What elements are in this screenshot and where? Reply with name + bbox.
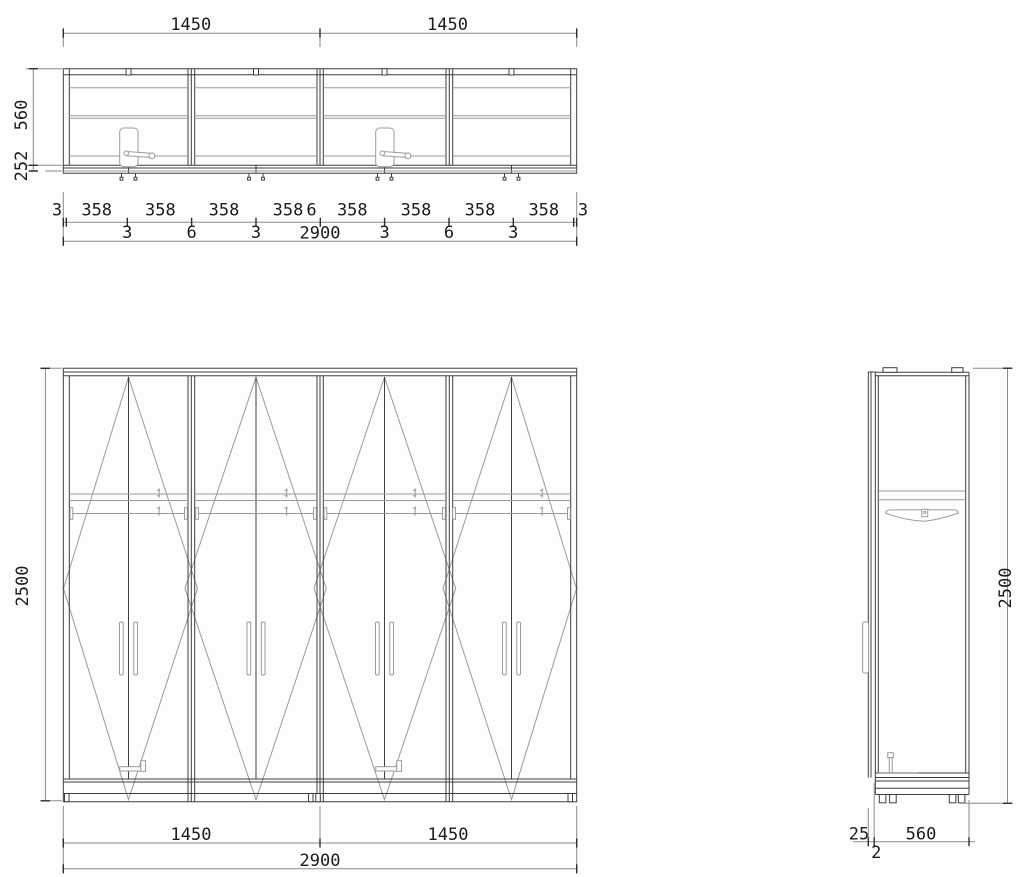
bottom-lock-brackets: [120, 761, 402, 772]
chain-gap-1: 6: [186, 223, 196, 243]
chain-seg-4: 358: [273, 201, 304, 221]
shelf-clip-symbols: [157, 488, 543, 515]
dim-side-height-2500: 2500: [996, 568, 1016, 609]
dim-front-depth-252: 252: [12, 151, 32, 182]
front-view-outline: [63, 368, 576, 801]
chain-seg-6: 358: [337, 201, 368, 221]
bottom-pin-fitting: [878, 753, 917, 773]
dim-top-total-2900: 2900: [300, 224, 341, 244]
chain-seg-10: 3: [578, 201, 588, 221]
lock-bay-1: [120, 128, 155, 167]
plinth-feet: [65, 794, 573, 802]
chain-gap-3: 3: [379, 223, 389, 243]
wardrobe-three-view-drawing: 1450 1450 560 252 3 358 358 358 358 6 35…: [0, 0, 1024, 877]
front-view: [63, 368, 576, 801]
top-view-outline: [63, 69, 576, 174]
chain-gap-2: 3: [251, 223, 261, 243]
chain-gap-5: 3: [508, 223, 518, 243]
top-view: [63, 69, 576, 180]
side-view: [863, 368, 969, 803]
top-view-dimensions: 1450 1450 560 252 3 358 358 358 358 6 35…: [12, 15, 588, 246]
hanging-rail-bracket: [886, 509, 959, 521]
side-view-outline: [868, 372, 969, 795]
dim-side-door-25: 25: [849, 825, 869, 845]
dim-top-width-2: 1450: [427, 15, 468, 35]
chain-seg-3: 358: [209, 201, 240, 221]
dim-top-width-1: 1450: [170, 15, 211, 35]
chain-seg-7: 358: [401, 201, 432, 221]
chain-gap-4: 6: [444, 223, 454, 243]
chain-seg-5: 6: [306, 201, 316, 221]
lock-bay-3: [376, 128, 411, 167]
side-door-handle: [863, 622, 869, 673]
dim-front-width-2: 1450: [428, 825, 469, 845]
dim-depth-560: 560: [12, 100, 32, 131]
chain-seg-1: 358: [81, 201, 112, 221]
door-hinge-marks: [122, 173, 519, 177]
dim-front-height-2500: 2500: [13, 566, 33, 607]
chain-seg-9: 358: [528, 201, 559, 221]
chain-seg-2: 358: [145, 201, 176, 221]
side-feet: [879, 795, 965, 803]
dim-side-depth-560: 560: [906, 825, 937, 845]
door-hinge-feet: [120, 177, 520, 180]
chain-seg-0: 3: [52, 201, 62, 221]
cad-drawing: 1450 1450 560 252 3 358 358 358 358 6 35…: [0, 0, 1024, 877]
top-cap-tabs: [883, 368, 963, 373]
front-view-dimensions: 2500 1450 1450 2900: [13, 368, 577, 873]
dim-side-gap-2: 2: [871, 843, 881, 863]
chain-seg-8: 358: [465, 201, 496, 221]
side-shelf-lines: [878, 491, 965, 500]
dim-front-total-2900: 2900: [300, 851, 341, 871]
chain-gap-0: 3: [122, 223, 132, 243]
dim-front-width-1: 1450: [171, 825, 212, 845]
